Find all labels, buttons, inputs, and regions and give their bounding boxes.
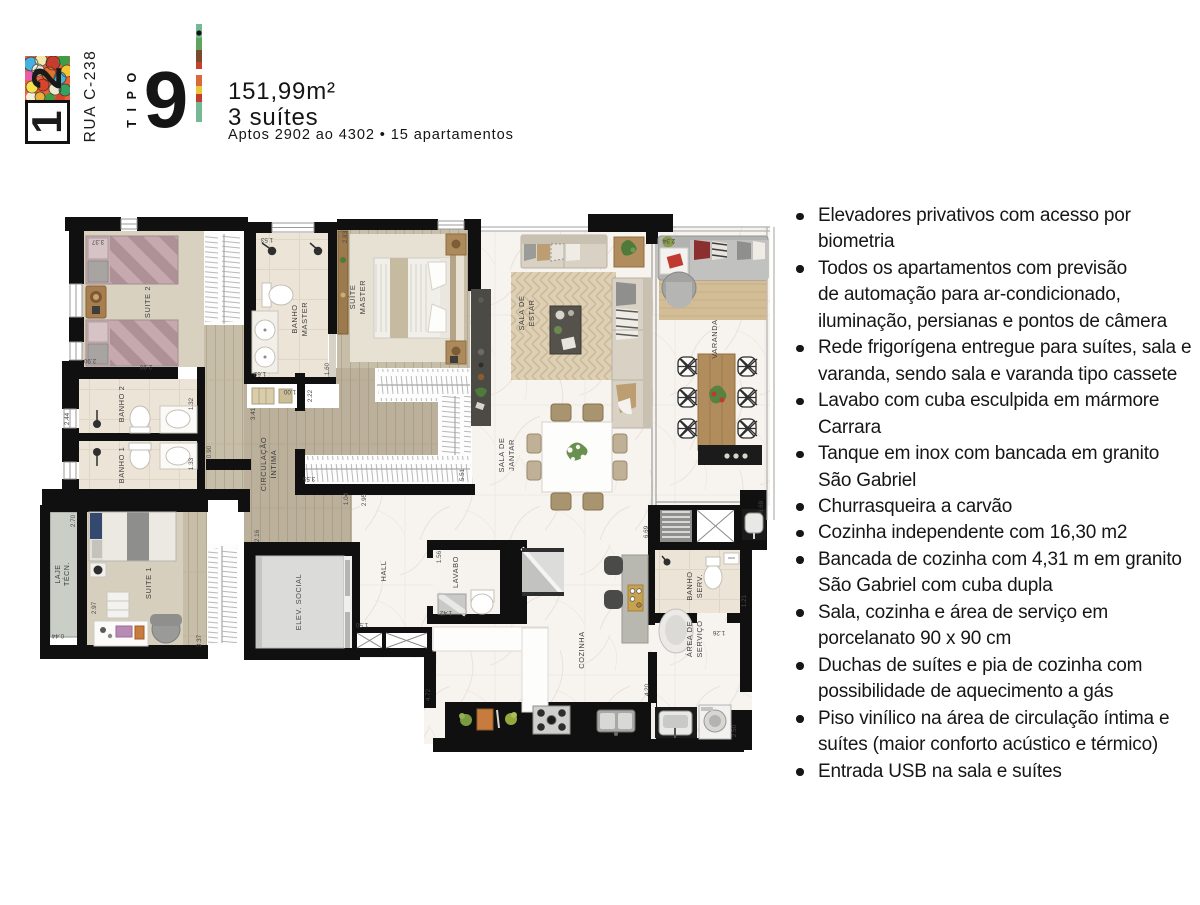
svg-text:3.55: 3.55: [302, 475, 315, 482]
svg-text:SUÍTE: SUÍTE: [348, 285, 357, 310]
svg-text:1.33: 1.33: [188, 457, 195, 470]
svg-text:4.20: 4.20: [644, 683, 651, 696]
svg-text:BANHO: BANHO: [685, 571, 694, 600]
svg-text:2.34: 2.34: [662, 237, 675, 244]
svg-text:2.50: 2.50: [731, 724, 738, 737]
svg-text:1.56: 1.56: [436, 550, 443, 563]
svg-text:BANHO 1: BANHO 1: [117, 447, 126, 484]
svg-text:MASTER: MASTER: [358, 280, 367, 314]
svg-text:COZINHA: COZINHA: [577, 631, 586, 668]
svg-text:1.32: 1.32: [188, 397, 195, 410]
svg-text:SALA DE: SALA DE: [497, 437, 506, 472]
svg-text:VARANDA: VARANDA: [710, 319, 719, 358]
svg-text:1.42: 1.42: [439, 609, 452, 616]
svg-text:2.95: 2.95: [361, 493, 368, 506]
svg-text:SERVIÇO: SERVIÇO: [695, 620, 704, 657]
svg-text:ÍNTIMA: ÍNTIMA: [269, 450, 278, 479]
svg-text:SUITE 1: SUITE 1: [144, 567, 153, 599]
svg-text:1.60: 1.60: [324, 362, 331, 375]
svg-text:0.90: 0.90: [206, 445, 213, 458]
svg-text:BANHO 2: BANHO 2: [117, 386, 126, 423]
svg-text:2.90: 2.90: [83, 357, 96, 364]
svg-text:1.04: 1.04: [343, 492, 350, 505]
svg-text:1.26: 1.26: [712, 629, 725, 636]
svg-text:4.72: 4.72: [425, 688, 432, 701]
svg-text:SALA DE: SALA DE: [517, 295, 526, 330]
svg-text:ELEV. SOCIAL: ELEV. SOCIAL: [294, 574, 303, 631]
svg-text:TÉCN.: TÉCN.: [62, 562, 71, 586]
svg-text:3.41: 3.41: [250, 407, 257, 420]
svg-text:SUITE 2: SUITE 2: [143, 286, 152, 318]
svg-text:3.37: 3.37: [91, 238, 104, 245]
svg-text:HALL: HALL: [379, 561, 388, 582]
svg-text:LAVABO: LAVABO: [451, 556, 460, 588]
svg-text:2.70: 2.70: [70, 514, 77, 527]
svg-text:ÁREA DE: ÁREA DE: [685, 621, 694, 657]
svg-text:1.21: 1.21: [741, 594, 748, 607]
svg-text:1.69: 1.69: [253, 370, 266, 377]
svg-text:CIRCULAÇÃO: CIRCULAÇÃO: [259, 437, 268, 491]
svg-text:3.37: 3.37: [196, 634, 203, 647]
svg-text:1.50: 1.50: [355, 621, 368, 628]
svg-text:2.90: 2.90: [139, 363, 152, 370]
svg-text:SERV.: SERV.: [695, 574, 704, 598]
svg-text:6.69: 6.69: [643, 525, 650, 538]
svg-text:ESTAR: ESTAR: [527, 299, 536, 326]
svg-text:2.44: 2.44: [64, 412, 71, 425]
svg-text:MASTER: MASTER: [300, 302, 309, 336]
svg-text:BANHO: BANHO: [290, 304, 299, 333]
svg-text:6.69: 6.69: [758, 500, 765, 513]
svg-text:5.51: 5.51: [459, 468, 466, 481]
svg-text:2.83: 2.83: [342, 230, 349, 243]
svg-text:JANTAR: JANTAR: [507, 439, 516, 471]
svg-text:2.16: 2.16: [254, 529, 261, 542]
svg-text:0.44: 0.44: [51, 632, 64, 639]
svg-text:2.22: 2.22: [307, 389, 314, 402]
svg-text:1.53: 1.53: [260, 236, 273, 243]
svg-text:1.00: 1.00: [283, 388, 296, 395]
svg-text:LAJE: LAJE: [55, 564, 62, 583]
svg-text:2.97: 2.97: [91, 601, 98, 614]
